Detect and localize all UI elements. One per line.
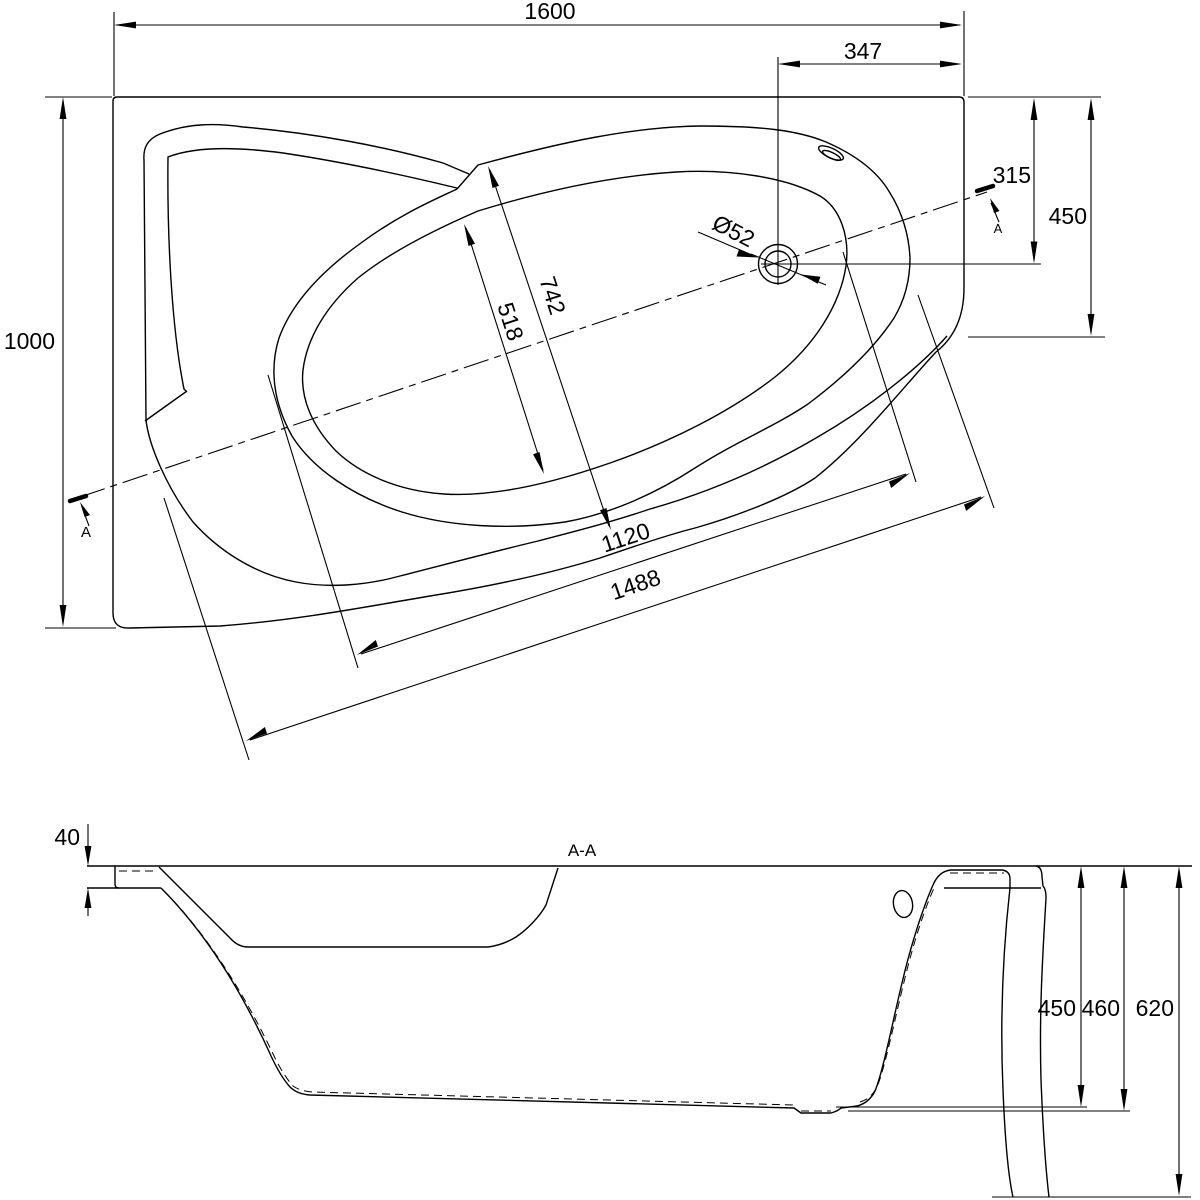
svg-text:742: 742 <box>534 273 571 318</box>
svg-text:450: 450 <box>1049 203 1087 229</box>
svg-text:A: A <box>81 524 91 541</box>
svg-text:40: 40 <box>54 824 80 850</box>
svg-text:518: 518 <box>492 299 529 344</box>
svg-text:1000: 1000 <box>4 328 55 354</box>
svg-text:Ø52: Ø52 <box>708 209 759 252</box>
svg-text:347: 347 <box>844 38 882 64</box>
svg-text:450: 450 <box>1038 995 1076 1021</box>
svg-text:315: 315 <box>993 162 1031 188</box>
svg-text:A: A <box>994 221 1003 236</box>
svg-text:A-A: A-A <box>568 841 597 860</box>
svg-text:460: 460 <box>1082 995 1120 1021</box>
svg-text:1600: 1600 <box>524 0 575 24</box>
svg-text:1120: 1120 <box>598 517 653 557</box>
svg-text:620: 620 <box>1136 995 1174 1021</box>
